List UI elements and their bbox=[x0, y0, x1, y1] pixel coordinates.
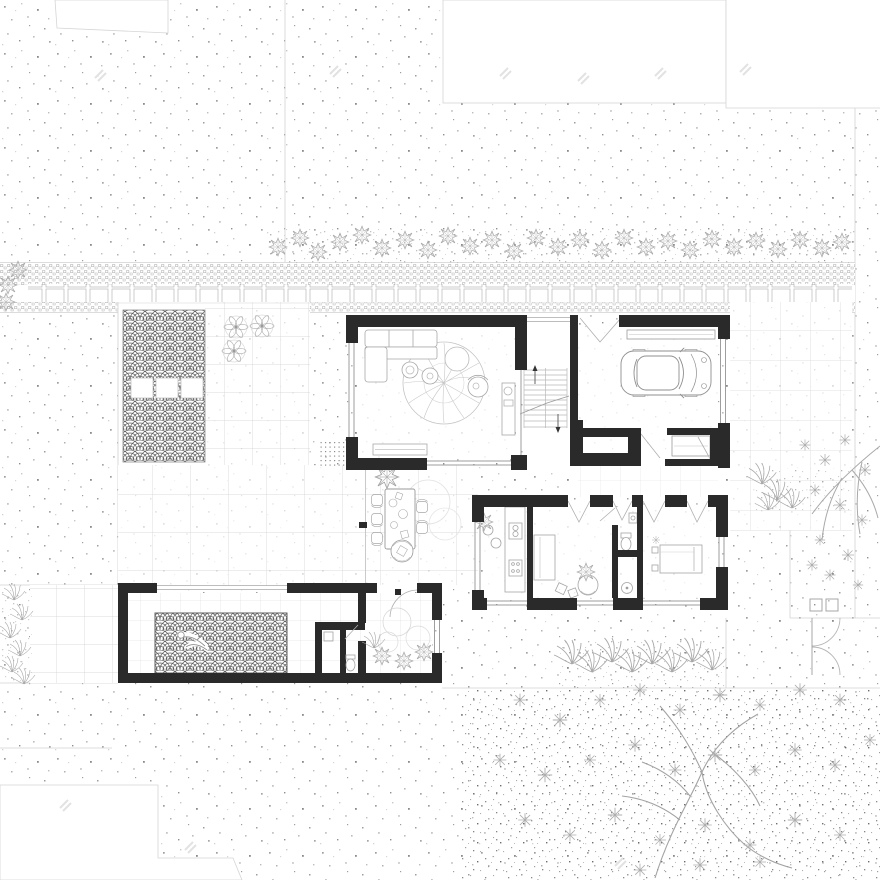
daybed bbox=[534, 535, 555, 580]
toilet bbox=[346, 659, 355, 671]
site-plan-drawing bbox=[0, 0, 880, 880]
pouf bbox=[445, 347, 469, 371]
pool-enclosure bbox=[30, 583, 442, 683]
kitchen-counter bbox=[505, 507, 525, 592]
parcel-top-right bbox=[726, 0, 880, 108]
side-table bbox=[422, 368, 438, 384]
parcel-top-center bbox=[443, 0, 726, 103]
car bbox=[621, 348, 711, 398]
canopy-post bbox=[359, 522, 367, 528]
toilet bbox=[621, 538, 631, 551]
side-table bbox=[402, 362, 418, 378]
sun-lounger bbox=[131, 378, 153, 398]
stepping-paver-row bbox=[28, 284, 852, 302]
corridor-floor bbox=[578, 466, 718, 497]
wicker-chair bbox=[391, 540, 413, 562]
parcel-top-left bbox=[55, 0, 168, 33]
stool bbox=[491, 538, 501, 548]
side-path-tiles bbox=[30, 585, 118, 683]
sun-lounger bbox=[156, 378, 178, 398]
pool bbox=[155, 613, 287, 673]
bed bbox=[660, 545, 702, 573]
sun-lounger bbox=[181, 378, 203, 398]
large-tree bbox=[460, 683, 880, 880]
site-plan-page bbox=[0, 0, 880, 880]
